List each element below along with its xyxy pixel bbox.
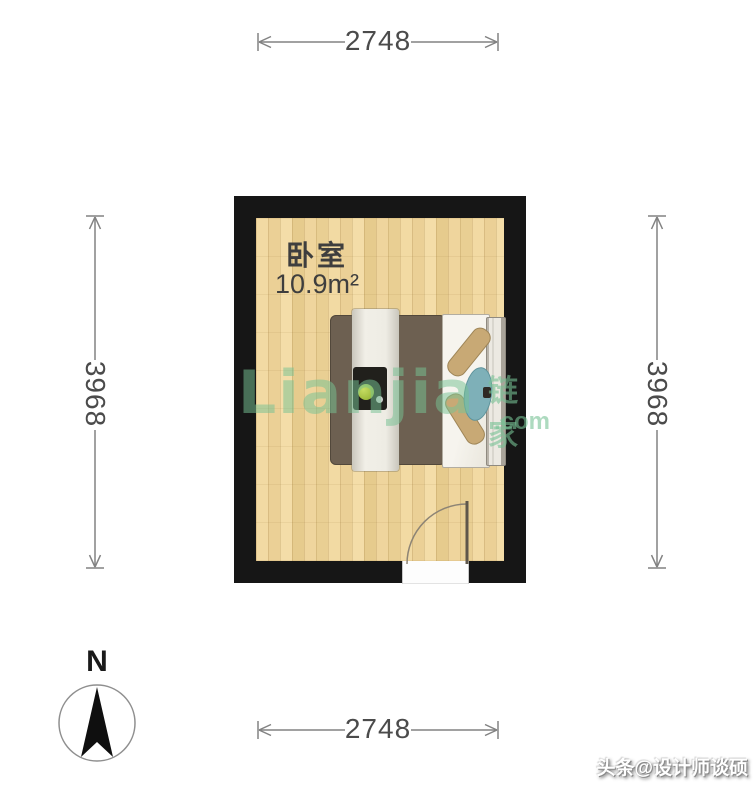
tray-green-dot: [358, 384, 374, 400]
compass-north-label: N: [86, 645, 108, 679]
dimension-label-left: 3968: [79, 361, 111, 427]
room-area-label: 10.9m²: [275, 269, 359, 300]
bed-tray: [353, 367, 387, 410]
bed-knob: [483, 387, 491, 398]
floorplan-page: 2748 2748 3968 3968 N 卧室 10.9m²: [0, 0, 754, 792]
room-name-label: 卧室: [286, 234, 348, 274]
bed: [330, 312, 504, 468]
plan-walls: 卧室 10.9m²: [234, 196, 526, 583]
door-opening: [402, 561, 469, 584]
tray-white-dot: [376, 396, 383, 403]
credit-text: 头条@设计师谈硕: [596, 753, 748, 780]
dimension-label-right: 3968: [641, 361, 673, 427]
dimension-label-top: 2748: [345, 25, 411, 57]
compass-icon: [59, 685, 135, 761]
dimension-label-bottom: 2748: [345, 713, 411, 745]
